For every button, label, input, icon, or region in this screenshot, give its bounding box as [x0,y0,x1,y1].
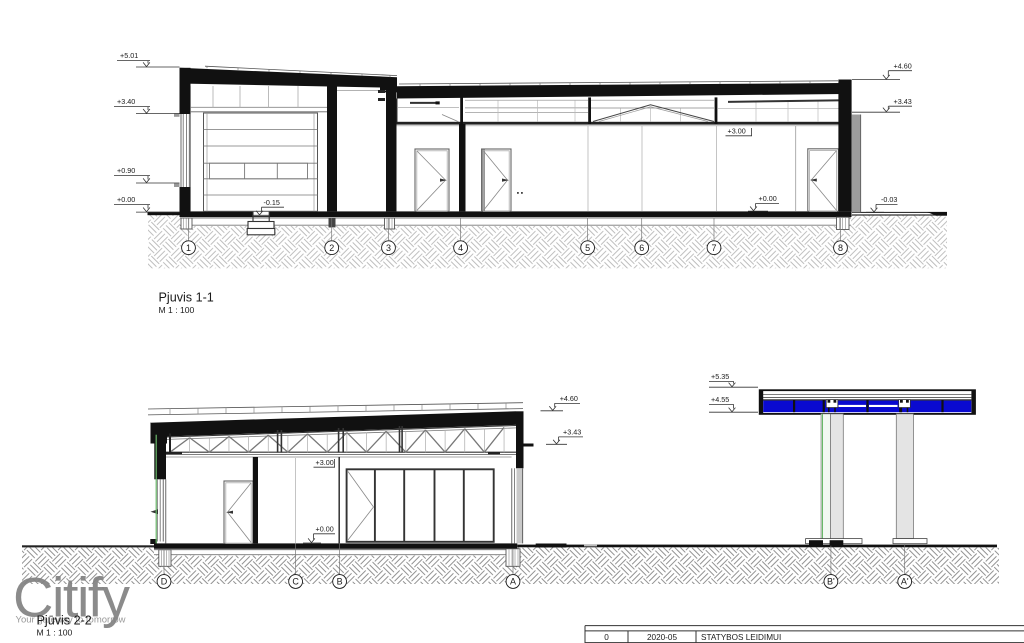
svg-text:M 1 : 100: M 1 : 100 [37,628,73,638]
svg-text:+3.43: +3.43 [894,97,912,106]
svg-text:+0.00: +0.00 [759,194,777,203]
svg-text:+3.00: +3.00 [316,458,334,467]
svg-text:+3.43: +3.43 [563,428,581,437]
svg-text:+0.00: +0.00 [316,524,334,533]
svg-text:2020-05: 2020-05 [647,633,677,642]
svg-text:+3.00: +3.00 [728,127,746,136]
svg-text:0: 0 [604,633,609,642]
svg-text:+4.55: +4.55 [711,395,729,404]
svg-text:+5.35: +5.35 [711,372,729,381]
svg-text:C: C [292,577,299,587]
svg-text:+4.60: +4.60 [560,394,578,403]
svg-text:+0.90: +0.90 [117,166,135,175]
svg-text:B: B [337,577,343,587]
svg-text:-0.15: -0.15 [264,198,280,207]
svg-text:+3.40: +3.40 [117,97,135,106]
svg-text:D: D [161,577,168,587]
svg-text:3: 3 [386,243,391,253]
svg-text:+0.00: +0.00 [117,195,135,204]
svg-text:Pjūvis 2-2: Pjūvis 2-2 [37,614,92,628]
svg-text:6: 6 [639,243,644,253]
svg-text:1: 1 [186,243,191,253]
svg-text:A': A' [901,577,909,587]
svg-text:B': B' [827,577,835,587]
svg-text:4: 4 [458,243,463,253]
svg-text:7: 7 [711,243,716,253]
svg-text:-0.03: -0.03 [881,195,897,204]
svg-text:A: A [510,577,516,587]
svg-text:Pjuvis 1-1: Pjuvis 1-1 [159,291,214,305]
svg-text:+4.60: +4.60 [894,61,912,70]
svg-text:STATYBOS LEIDIMUI: STATYBOS LEIDIMUI [701,633,781,642]
svg-text:2: 2 [329,243,334,253]
svg-text:8: 8 [838,243,843,253]
svg-text:+5.01: +5.01 [120,51,138,60]
svg-text:M 1 : 100: M 1 : 100 [159,305,195,315]
svg-text:5: 5 [585,243,590,253]
